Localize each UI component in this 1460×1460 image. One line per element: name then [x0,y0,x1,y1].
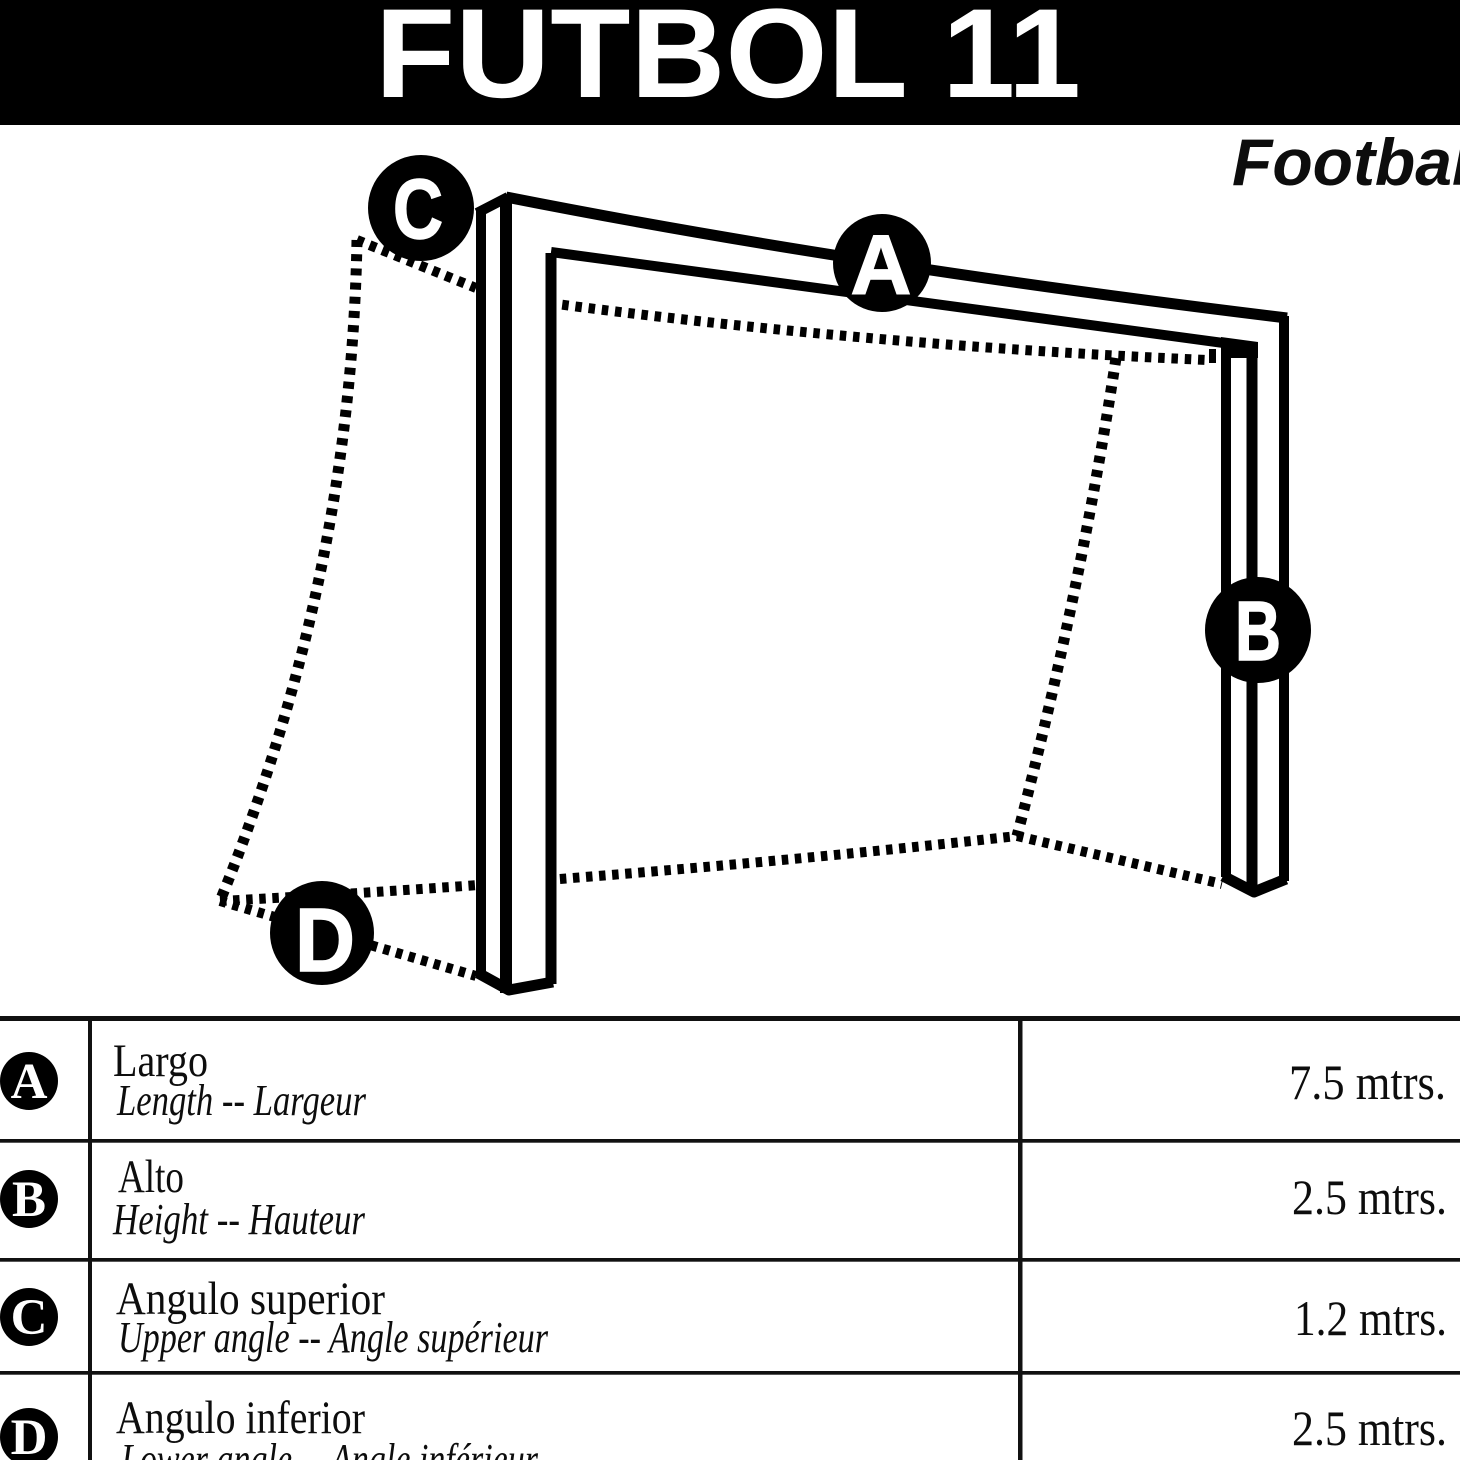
svg-text:B: B [12,1172,46,1228]
svg-text:D: D [295,891,355,991]
svg-text:FUTBOL 11: FUTBOL 11 [375,0,1081,124]
svg-text:1.2 mtrs.: 1.2 mtrs. [1294,1290,1447,1346]
svg-text:2.5 mtrs.: 2.5 mtrs. [1292,1169,1447,1225]
svg-text:C: C [393,162,443,256]
svg-text:A: A [851,218,912,312]
svg-text:Upper angle -- Angle supérieur: Upper angle -- Angle supérieur [118,1313,549,1362]
svg-text:2.5 mtrs.: 2.5 mtrs. [1292,1400,1447,1456]
svg-text:B: B [1235,584,1281,678]
svg-text:7.5 mtrs.: 7.5 mtrs. [1289,1054,1446,1110]
svg-text:A: A [11,1054,48,1110]
svg-text:Length -- Largeur: Length -- Largeur [116,1076,366,1125]
svg-text:Height -- Hauteur: Height -- Hauteur [112,1195,365,1244]
svg-text:C: C [11,1290,48,1346]
svg-text:Lower angle -- Angle inférieur: Lower angle -- Angle inférieur [120,1435,538,1460]
svg-text:D: D [11,1410,48,1460]
svg-text:Football: Football [1232,125,1460,199]
